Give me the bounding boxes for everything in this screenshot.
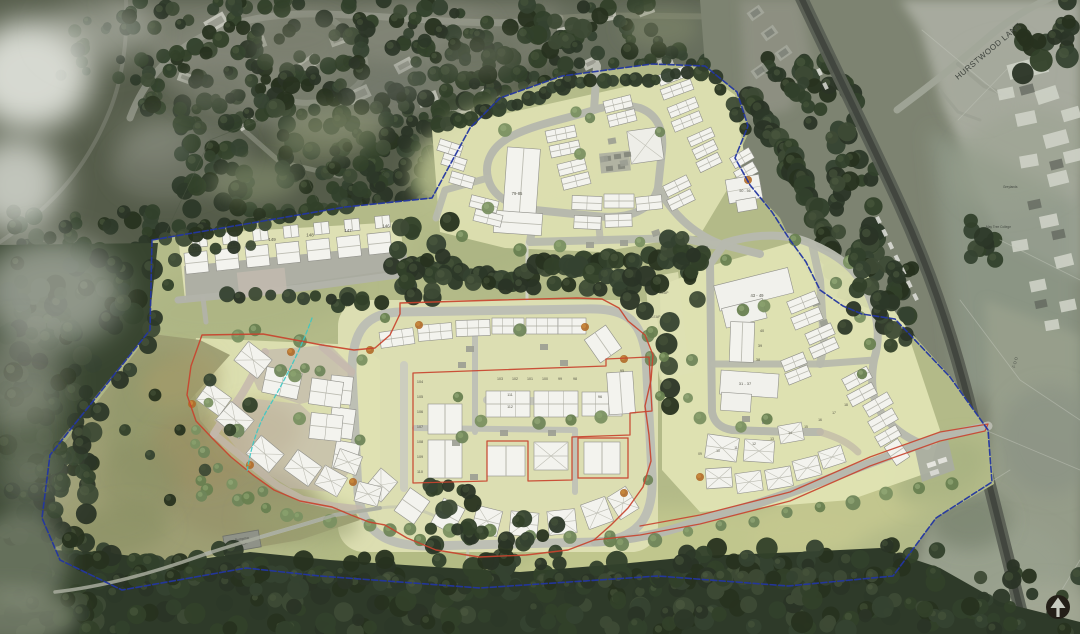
svg-text:99: 99 xyxy=(558,377,562,381)
svg-text:98: 98 xyxy=(573,377,577,381)
svg-text:112: 112 xyxy=(507,405,513,409)
svg-text:149: 149 xyxy=(268,237,276,242)
svg-text:104: 104 xyxy=(417,380,423,384)
svg-text:38: 38 xyxy=(756,358,760,362)
svg-text:17: 17 xyxy=(832,411,836,415)
svg-text:18: 18 xyxy=(844,403,848,407)
svg-text:12: 12 xyxy=(752,442,756,446)
svg-text:103: 103 xyxy=(497,377,503,381)
svg-text:95: 95 xyxy=(620,369,624,373)
svg-text:111: 111 xyxy=(507,393,512,397)
svg-text:108: 108 xyxy=(417,440,423,444)
svg-text:Greylands: Greylands xyxy=(1003,185,1018,189)
svg-text:147: 147 xyxy=(344,228,352,233)
svg-text:96: 96 xyxy=(598,395,602,399)
svg-text:09: 09 xyxy=(698,452,702,456)
svg-text:LEAP: LEAP xyxy=(660,291,670,295)
svg-text:15: 15 xyxy=(804,425,808,429)
svg-text:109: 109 xyxy=(417,455,423,459)
svg-text:10: 10 xyxy=(716,449,720,453)
svg-text:106: 106 xyxy=(417,410,423,414)
svg-text:16: 16 xyxy=(818,418,822,422)
svg-text:100: 100 xyxy=(542,377,548,381)
svg-text:148: 148 xyxy=(306,233,314,238)
svg-text:110: 110 xyxy=(417,470,423,474)
svg-text:107: 107 xyxy=(417,425,423,429)
svg-text:31 - 37: 31 - 37 xyxy=(739,381,752,386)
svg-text:101: 101 xyxy=(527,377,533,381)
svg-text:50 - 56: 50 - 56 xyxy=(739,189,750,193)
svg-text:105: 105 xyxy=(417,395,423,399)
svg-text:LEAP: LEAP xyxy=(652,315,662,319)
svg-text:11: 11 xyxy=(734,446,738,450)
svg-text:May Tree College: May Tree College xyxy=(986,225,1011,229)
svg-text:14: 14 xyxy=(788,431,792,435)
svg-text:102: 102 xyxy=(512,377,518,381)
svg-text:79-85: 79-85 xyxy=(512,191,523,196)
svg-text:43 - 49: 43 - 49 xyxy=(750,293,764,298)
svg-text:39: 39 xyxy=(758,344,762,348)
svg-text:146: 146 xyxy=(382,224,390,229)
svg-text:40: 40 xyxy=(760,329,764,333)
svg-text:13: 13 xyxy=(770,437,774,441)
